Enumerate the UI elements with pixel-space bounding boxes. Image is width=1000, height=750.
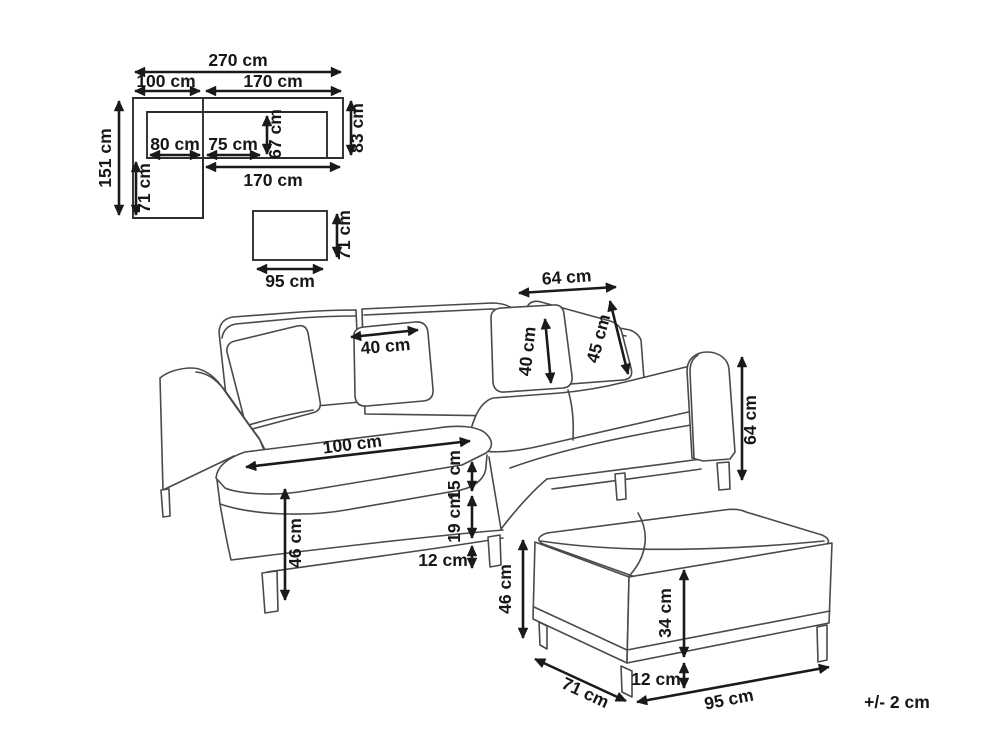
right-armrest (687, 352, 735, 461)
dim-label: 75 cm (208, 134, 258, 154)
dim-sofa-leg-height: 12 cm (418, 546, 472, 570)
dim-label: 46 cm (495, 564, 515, 614)
dim-plan-total-depth: 151 cm (95, 101, 119, 215)
dim-ottoman-leg-height: 12 cm (631, 663, 684, 689)
sofa-leg-right (717, 462, 730, 490)
dim-plan-section-width: 170 cm (206, 71, 341, 91)
dim-label: 19 cm (444, 493, 464, 543)
sofa-leg-front-left (262, 571, 278, 613)
dim-plan-inner-width: 170 cm (206, 167, 340, 190)
dim-plan-ottoman-width: 95 cm (257, 269, 323, 291)
dim-label: 34 cm (655, 588, 675, 638)
dim-sofa-back-height: 64 cm (740, 357, 760, 480)
dim-plan-chaise-seat-width: 80 cm (150, 134, 200, 155)
dim-label: 12 cm (631, 669, 681, 689)
sofa-dimension-diagram: 270 cm 100 cm 170 cm 151 cm 83 cm 67 cm … (0, 0, 1000, 750)
dim-label: 12 cm (418, 550, 468, 570)
dim-label: 71 cm (559, 673, 612, 712)
dim-label: 46 cm (285, 518, 305, 568)
dim-label: 15 cm (444, 450, 464, 500)
sofa-leg-mid-right (615, 473, 626, 500)
dim-label: 170 cm (243, 170, 302, 190)
dim-arrow (519, 287, 616, 293)
diagram-svg: 270 cm 100 cm 170 cm 151 cm 83 cm 67 cm … (0, 0, 1000, 750)
dim-label: 83 cm (347, 103, 367, 153)
sofa-leg-back-left (161, 489, 170, 517)
dim-label: 151 cm (95, 128, 115, 187)
dim-sofa-seat-height: 46 cm (285, 489, 305, 600)
chaise-side-line (489, 457, 547, 529)
plinth-right-line (552, 469, 701, 489)
dim-plan-chaise-width: 100 cm (135, 71, 200, 91)
dim-label: 170 cm (243, 71, 302, 91)
sofa-leg-middle (488, 535, 501, 567)
dim-label: 71 cm (134, 163, 154, 213)
dim-label: 71 cm (334, 210, 354, 260)
dim-label: 80 cm (150, 134, 200, 154)
dim-label: 67 cm (265, 109, 285, 159)
dim-label: 64 cm (740, 395, 760, 445)
dim-ottoman-depth: 71 cm (535, 659, 626, 712)
dim-sofa-back-cushion-width: 64 cm (519, 265, 616, 293)
dim-plan-seat-width: 75 cm (207, 134, 260, 155)
dim-plan-section-depth: 83 cm (347, 101, 367, 155)
dim-label: 100 cm (136, 71, 195, 91)
dim-plan-chaise-extension: 71 cm (134, 162, 154, 215)
tolerance-note: +/- 2 cm (864, 692, 930, 712)
dim-label: 64 cm (541, 265, 592, 288)
dim-plan-seat-depth: 67 cm (265, 109, 285, 159)
plan-view: 270 cm 100 cm 170 cm 151 cm 83 cm 67 cm … (95, 50, 367, 291)
dim-sofa-base-height: 19 cm (444, 493, 472, 543)
dim-label: 270 cm (208, 50, 267, 70)
ottoman-illustration: 46 cm 71 cm 34 cm 12 cm 95 cm (495, 509, 832, 713)
dim-plan-total-width: 270 cm (135, 50, 341, 72)
dim-label: 95 cm (265, 271, 315, 291)
ottoman-leg-right (817, 625, 827, 662)
dim-plan-ottoman-depth: 71 cm (334, 210, 354, 260)
ottoman-leg-left (539, 622, 547, 649)
plan-ottoman-rect (253, 211, 327, 260)
